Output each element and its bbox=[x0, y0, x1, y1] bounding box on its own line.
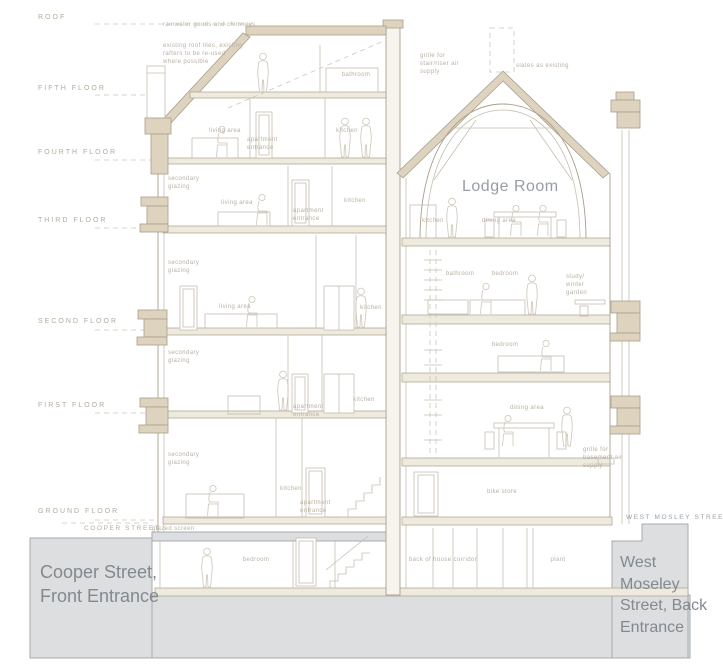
entrance-left-text: Cooper Street, Front Entrance bbox=[40, 560, 190, 609]
room-label-entrance-3f: apartment entrance bbox=[293, 208, 329, 224]
floor-label-first: FIRST FLOOR bbox=[38, 402, 106, 409]
room-label-secglazing-3f: secondary glazing bbox=[168, 176, 204, 192]
floor-label-fourth: FOURTH FLOOR bbox=[38, 149, 117, 156]
room-label-kitchen-4f: kitchen bbox=[330, 128, 364, 136]
services-riser bbox=[424, 250, 442, 458]
room-label-dining-r: dining area bbox=[505, 405, 549, 413]
room-label-entrance-4f: apartment entrance bbox=[247, 137, 283, 153]
room-label-kitchen-2f: kitchen bbox=[356, 305, 386, 313]
floor-label-third: THIRD FLOOR bbox=[38, 217, 107, 224]
annotation-roof-right: slates as existing bbox=[516, 63, 596, 71]
room-label-bathroom-r: bathroom bbox=[440, 271, 480, 279]
left-building bbox=[137, 26, 386, 588]
floor-label-roof: ROOF bbox=[38, 14, 66, 21]
annotation-roof-construction: existing roof tiles, existing rafters to… bbox=[163, 43, 243, 66]
cornice-blocks bbox=[137, 118, 171, 433]
party-wall bbox=[383, 20, 403, 595]
annotation-glazed-screen: glazed screen bbox=[152, 526, 212, 534]
room-label-boh-corridor: back of house corridor bbox=[408, 557, 478, 565]
floor-label-fifth: FIFTH FLOOR bbox=[38, 85, 106, 92]
room-label-living-4f: living area bbox=[205, 128, 245, 136]
room-label-dining-lodge: dining area bbox=[477, 218, 521, 226]
room-label-living-2f: living area bbox=[213, 304, 257, 312]
room-label-plant: plant bbox=[543, 557, 573, 565]
section-drawing: ROOF FIFTH FLOOR FOURTH FLOOR THIRD FLOO… bbox=[0, 0, 723, 668]
room-label-living-3f: living area bbox=[215, 200, 259, 208]
street-label-cooper: COOPER STREET bbox=[84, 525, 160, 532]
room-label-bike-store: bike store bbox=[480, 489, 524, 497]
room-label-bedroom-r1: bedroom bbox=[487, 271, 523, 279]
room-label-bathroom-5f: bathroom bbox=[336, 72, 376, 80]
street-label-west-mosley: WEST MOSLEY STREET bbox=[626, 514, 723, 521]
floor-label-second: SECOND FLOOR bbox=[38, 318, 118, 325]
annotation-roof-edge: rainwater goods and chimneys bbox=[163, 22, 273, 30]
right-building bbox=[397, 28, 640, 588]
annotation-basement-grille: grille for basement air supply bbox=[583, 447, 627, 470]
floor-label-ground: GROUND FLOOR bbox=[38, 508, 119, 515]
room-label-kitchen-gf: kitchen bbox=[276, 486, 306, 494]
room-label-study-winter: study/ winter garden bbox=[566, 274, 602, 297]
room-label-kitchen-3f: kitchen bbox=[340, 198, 370, 206]
room-label-secglazing-2f: secondary glazing bbox=[168, 260, 204, 276]
room-label-bedroom-bsmt: bedroom bbox=[236, 557, 276, 565]
lodge-room-title: Lodge Room bbox=[462, 178, 559, 196]
room-label-kitchen-lodge: kitchen bbox=[416, 218, 450, 226]
room-label-secglazing-gf: secondary glazing bbox=[168, 452, 204, 468]
entrance-right-text: West Moseley Street, Back Entrance bbox=[620, 552, 716, 638]
room-label-entrance-1f: apartment entrance bbox=[293, 404, 329, 420]
room-label-kitchen-1f: kitchen bbox=[349, 397, 379, 405]
room-label-entrance-gf: apartment entrance bbox=[300, 500, 336, 516]
annotation-stair-riser: grille for stair/riser air supply bbox=[420, 53, 460, 76]
room-label-secglazing-1f: secondary glazing bbox=[168, 350, 204, 366]
room-label-bedroom-r2: bedroom bbox=[487, 342, 523, 350]
